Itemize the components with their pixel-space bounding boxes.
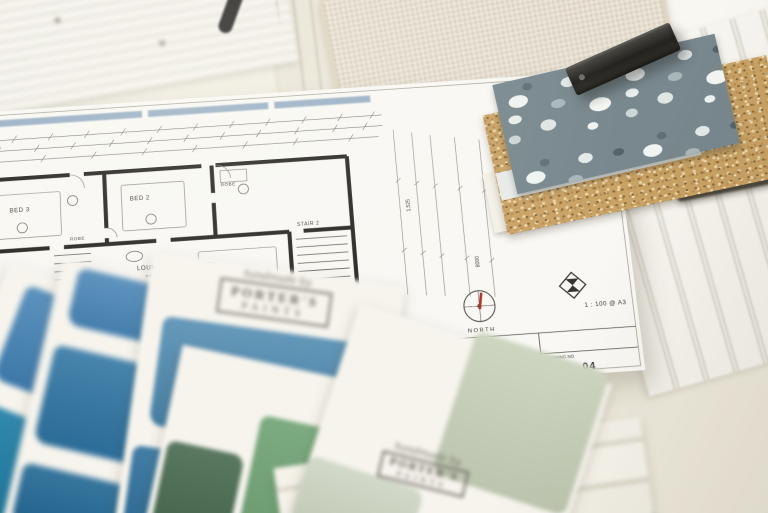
- clip-hole: [578, 73, 586, 81]
- room-label-robe1: ROBE: [70, 236, 85, 242]
- room-label-stair2: STAIR 2: [297, 221, 320, 228]
- room-label-robe2: ROBE: [221, 182, 236, 188]
- dimension-label-1: 1,525: [405, 199, 412, 212]
- photo-architect-desk: BED 3 BED 2 ROBE ROBE LOUNGE PTY BED 1 P…: [0, 0, 768, 513]
- section-dimension-lines: [391, 124, 498, 303]
- dimension-label-2: 8000: [474, 256, 481, 268]
- room-label-bed2: BED 2: [130, 195, 151, 202]
- survey-marker-icon: [560, 272, 586, 298]
- scale-label: 1 : 100 @ A3: [584, 300, 627, 309]
- room-label-bed3: BED 3: [9, 207, 30, 214]
- paint-patch-green-dark: [149, 440, 245, 513]
- north-compass: NORTH: [462, 290, 497, 335]
